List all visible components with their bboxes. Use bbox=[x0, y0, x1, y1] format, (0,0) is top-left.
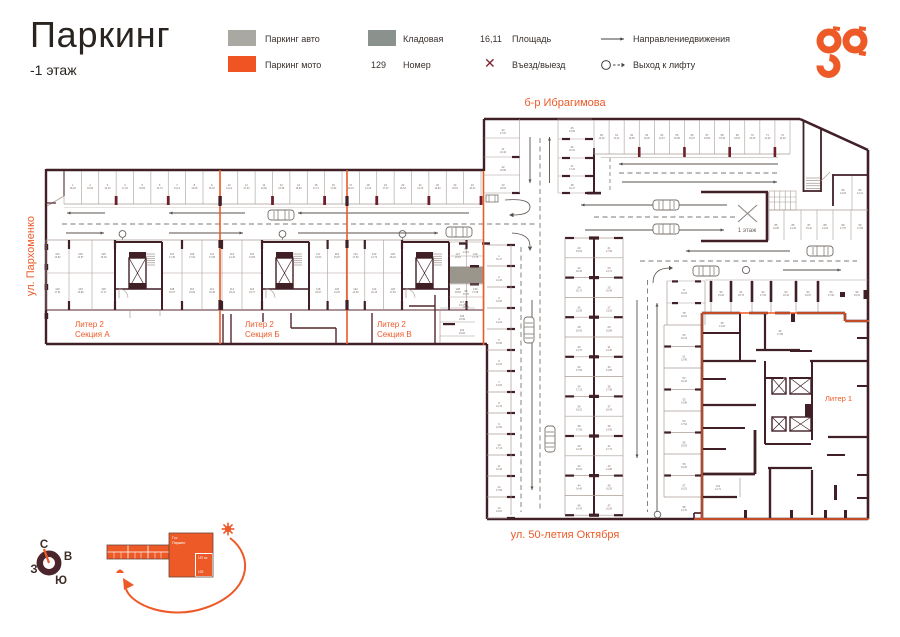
svg-text:16,97: 16,97 bbox=[805, 294, 812, 297]
svg-text:18,43: 18,43 bbox=[576, 329, 583, 332]
svg-text:17,63: 17,63 bbox=[353, 256, 360, 259]
svg-text:14,21: 14,21 bbox=[226, 187, 233, 190]
svg-text:18,33: 18,33 bbox=[469, 187, 476, 190]
svg-text:16,17: 16,17 bbox=[569, 187, 576, 190]
svg-text:17,68: 17,68 bbox=[209, 256, 216, 259]
svg-text:18,41: 18,41 bbox=[229, 291, 236, 294]
svg-text:18,99: 18,99 bbox=[459, 318, 466, 321]
svg-text:18,54: 18,54 bbox=[455, 291, 462, 294]
svg-text:13,28: 13,28 bbox=[576, 310, 583, 313]
svg-text:17,13: 17,13 bbox=[576, 389, 583, 392]
svg-text:1 этаж: 1 этаж bbox=[738, 227, 757, 234]
svg-text:13,84: 13,84 bbox=[55, 256, 62, 259]
svg-text:15,77: 15,77 bbox=[249, 291, 256, 294]
svg-text:16,46: 16,46 bbox=[500, 151, 507, 154]
svg-text:13,56: 13,56 bbox=[496, 426, 503, 429]
svg-text:17,27: 17,27 bbox=[382, 187, 389, 190]
svg-text:17,93: 17,93 bbox=[760, 294, 767, 297]
svg-text:15,53: 15,53 bbox=[455, 256, 462, 259]
svg-text:14,11: 14,11 bbox=[857, 192, 863, 195]
svg-text:16,25: 16,25 bbox=[576, 270, 583, 273]
svg-text:13,69: 13,69 bbox=[569, 130, 576, 133]
svg-text:14,66: 14,66 bbox=[496, 300, 503, 303]
svg-text:14,53: 14,53 bbox=[353, 291, 360, 294]
svg-text:17,48: 17,48 bbox=[606, 389, 613, 392]
svg-text:157 м²: 157 м² bbox=[198, 556, 207, 560]
svg-text:16,93: 16,93 bbox=[87, 187, 94, 190]
svg-text:ул. 50-летия Октября: ул. 50-летия Октября bbox=[511, 529, 620, 541]
svg-text:17,74: 17,74 bbox=[606, 448, 613, 451]
svg-text:14,15: 14,15 bbox=[365, 187, 372, 190]
svg-text:17,36: 17,36 bbox=[169, 256, 176, 259]
svg-text:13,83: 13,83 bbox=[435, 187, 442, 190]
svg-text:13,25: 13,25 bbox=[334, 291, 341, 294]
svg-text:17,73: 17,73 bbox=[472, 256, 479, 259]
svg-text:17,17: 17,17 bbox=[101, 291, 108, 294]
svg-text:16,61: 16,61 bbox=[854, 294, 861, 297]
svg-text:17,22: 17,22 bbox=[122, 187, 129, 190]
svg-text:Паркинг: Паркинг bbox=[172, 541, 186, 545]
svg-text:16,80: 16,80 bbox=[704, 137, 711, 140]
svg-text:15,54: 15,54 bbox=[576, 250, 583, 253]
svg-text:15,26: 15,26 bbox=[718, 294, 725, 297]
svg-text:17,88: 17,88 bbox=[777, 333, 784, 336]
svg-text:13,17: 13,17 bbox=[459, 304, 466, 307]
svg-text:16,91: 16,91 bbox=[681, 315, 688, 318]
svg-text:14,63: 14,63 bbox=[822, 227, 829, 230]
svg-text:14,23: 14,23 bbox=[681, 488, 688, 491]
svg-text:16,55: 16,55 bbox=[606, 508, 613, 511]
svg-text:16,15: 16,15 bbox=[371, 291, 378, 294]
svg-text:18,43: 18,43 bbox=[606, 409, 613, 412]
svg-text:17,58: 17,58 bbox=[496, 489, 503, 492]
svg-text:18,59: 18,59 bbox=[500, 169, 507, 172]
svg-text:16,20: 16,20 bbox=[644, 137, 651, 140]
svg-text:17,91: 17,91 bbox=[55, 291, 62, 294]
svg-text:15,91: 15,91 bbox=[576, 468, 583, 471]
svg-text:15,20: 15,20 bbox=[681, 466, 688, 469]
svg-text:14,46: 14,46 bbox=[599, 137, 606, 140]
svg-text:17,54: 17,54 bbox=[681, 423, 688, 426]
svg-text:17,97: 17,97 bbox=[500, 132, 507, 135]
svg-text:17,64: 17,64 bbox=[243, 187, 250, 190]
svg-text:16,60: 16,60 bbox=[629, 137, 636, 140]
svg-text:14,76: 14,76 bbox=[576, 349, 583, 352]
svg-text:16,53: 16,53 bbox=[315, 256, 322, 259]
svg-text:14,79: 14,79 bbox=[417, 187, 424, 190]
svg-text:13,45: 13,45 bbox=[681, 359, 688, 362]
svg-text:Гос: Гос bbox=[172, 536, 178, 540]
svg-text:15,70: 15,70 bbox=[463, 293, 470, 296]
svg-text:Литер 2: Литер 2 bbox=[377, 320, 406, 329]
svg-text:17,56: 17,56 bbox=[576, 369, 583, 372]
svg-text:15,63: 15,63 bbox=[400, 187, 407, 190]
svg-text:15,63: 15,63 bbox=[719, 137, 726, 140]
svg-text:15,84: 15,84 bbox=[139, 187, 146, 190]
svg-text:13,80: 13,80 bbox=[78, 291, 85, 294]
svg-text:17,82: 17,82 bbox=[857, 227, 864, 230]
svg-text:З: З bbox=[30, 564, 37, 576]
svg-text:Литер 2: Литер 2 bbox=[75, 320, 104, 329]
svg-text:15,87: 15,87 bbox=[334, 256, 341, 259]
svg-text:14,43: 14,43 bbox=[790, 227, 797, 230]
svg-text:17,56: 17,56 bbox=[576, 428, 583, 431]
svg-text:18,19: 18,19 bbox=[390, 256, 397, 259]
svg-text:18,54: 18,54 bbox=[500, 187, 507, 190]
svg-text:14,78: 14,78 bbox=[496, 405, 503, 408]
svg-text:15,48: 15,48 bbox=[209, 291, 216, 294]
svg-text:14,24: 14,24 bbox=[496, 321, 503, 324]
svg-text:17,84: 17,84 bbox=[330, 187, 337, 190]
svg-text:17,24: 17,24 bbox=[569, 168, 576, 171]
svg-text:18,21: 18,21 bbox=[576, 409, 583, 412]
svg-text:18,90: 18,90 bbox=[296, 187, 303, 190]
svg-text:17,13: 17,13 bbox=[496, 447, 503, 450]
svg-text:13,36: 13,36 bbox=[496, 468, 503, 471]
svg-text:Литер 2: Литер 2 bbox=[245, 320, 274, 329]
svg-text:14,67: 14,67 bbox=[659, 137, 666, 140]
svg-text:16,49: 16,49 bbox=[606, 290, 613, 293]
svg-text:16,97: 16,97 bbox=[169, 291, 176, 294]
svg-text:В: В bbox=[64, 551, 72, 563]
svg-text:Литер 1: Литер 1 bbox=[825, 394, 852, 403]
svg-text:16,80: 16,80 bbox=[674, 137, 681, 140]
svg-text:14,91: 14,91 bbox=[496, 510, 503, 513]
svg-text:13,72: 13,72 bbox=[606, 270, 613, 273]
svg-text:14,78: 14,78 bbox=[576, 448, 583, 451]
svg-text:14,40: 14,40 bbox=[576, 488, 583, 491]
svg-text:15,92: 15,92 bbox=[459, 332, 466, 335]
svg-text:14,20: 14,20 bbox=[764, 137, 771, 140]
svg-text:17,56: 17,56 bbox=[606, 250, 613, 253]
svg-text:15,97: 15,97 bbox=[734, 137, 741, 140]
svg-text:14,55: 14,55 bbox=[606, 428, 613, 431]
svg-text:14,18: 14,18 bbox=[496, 279, 503, 282]
svg-text:14,71: 14,71 bbox=[715, 488, 722, 491]
svg-text:15,86: 15,86 bbox=[496, 342, 503, 345]
svg-text:б-р Ибрагимова: б-р Ибрагимова bbox=[524, 97, 606, 109]
svg-text:13,36: 13,36 bbox=[606, 349, 613, 352]
svg-text:16,23: 16,23 bbox=[681, 292, 688, 295]
svg-text:14,70: 14,70 bbox=[681, 509, 688, 512]
svg-text:17,83: 17,83 bbox=[390, 291, 397, 294]
svg-text:13,74: 13,74 bbox=[157, 187, 164, 190]
svg-text:16,71: 16,71 bbox=[576, 290, 583, 293]
svg-text:17,68: 17,68 bbox=[472, 291, 479, 294]
svg-text:18,13: 18,13 bbox=[681, 337, 688, 340]
svg-text:14,29: 14,29 bbox=[779, 137, 786, 140]
svg-text:Выход к лифту: Выход к лифту bbox=[633, 60, 696, 70]
svg-text:14,57: 14,57 bbox=[78, 256, 85, 259]
svg-text:14,41: 14,41 bbox=[614, 137, 621, 140]
svg-text:Секция Б: Секция Б bbox=[245, 330, 280, 339]
svg-text:14,94: 14,94 bbox=[840, 192, 847, 195]
svg-text:129: 129 bbox=[198, 570, 204, 574]
svg-text:18,67: 18,67 bbox=[315, 291, 322, 294]
svg-text:13,82: 13,82 bbox=[496, 384, 503, 387]
svg-text:13,21: 13,21 bbox=[463, 251, 470, 254]
svg-text:16,16: 16,16 bbox=[348, 187, 355, 190]
svg-text:14,72: 14,72 bbox=[371, 256, 378, 259]
svg-text:16,18: 16,18 bbox=[209, 187, 216, 190]
svg-text:18,18: 18,18 bbox=[101, 256, 108, 259]
svg-text:16,39: 16,39 bbox=[606, 488, 613, 491]
svg-text:13,23: 13,23 bbox=[496, 363, 503, 366]
svg-text:14,76: 14,76 bbox=[576, 508, 583, 511]
svg-text:13,65: 13,65 bbox=[191, 187, 198, 190]
svg-text:18,75: 18,75 bbox=[738, 294, 745, 297]
svg-text:ул. Пархоменко: ул. Пархоменко bbox=[25, 216, 37, 296]
svg-text:14,14: 14,14 bbox=[174, 187, 181, 190]
svg-text:15,27: 15,27 bbox=[689, 137, 696, 140]
svg-text:16,39: 16,39 bbox=[749, 137, 756, 140]
svg-text:17,17: 17,17 bbox=[313, 187, 320, 190]
svg-text:14,98: 14,98 bbox=[606, 369, 613, 372]
svg-text:17,64: 17,64 bbox=[189, 256, 196, 259]
svg-text:18,16: 18,16 bbox=[783, 294, 790, 297]
svg-text:13,19: 13,19 bbox=[104, 187, 111, 190]
svg-text:15,69: 15,69 bbox=[189, 291, 196, 294]
svg-text:16,43: 16,43 bbox=[681, 380, 688, 383]
svg-text:16,98: 16,98 bbox=[606, 329, 613, 332]
svg-text:Направлениедвижения: Направлениедвижения bbox=[633, 34, 730, 44]
svg-text:13,53: 13,53 bbox=[606, 310, 613, 313]
svg-text:16,54: 16,54 bbox=[681, 445, 688, 448]
svg-text:17,57: 17,57 bbox=[840, 227, 847, 230]
svg-text:16,17: 16,17 bbox=[496, 258, 503, 261]
svg-text:Ю: Ю bbox=[55, 575, 67, 587]
svg-text:13,83: 13,83 bbox=[249, 256, 256, 259]
svg-text:14,88: 14,88 bbox=[606, 468, 613, 471]
svg-text:15,29: 15,29 bbox=[70, 187, 77, 190]
svg-text:14,98: 14,98 bbox=[681, 402, 688, 405]
svg-text:С: С bbox=[40, 539, 48, 551]
svg-text:Секция В: Секция В bbox=[377, 330, 412, 339]
svg-text:13,82: 13,82 bbox=[261, 187, 268, 190]
svg-text:14,53: 14,53 bbox=[719, 325, 726, 328]
svg-text:16,85: 16,85 bbox=[773, 227, 780, 230]
svg-text:15,10: 15,10 bbox=[806, 227, 813, 230]
svg-text:15,81: 15,81 bbox=[452, 187, 459, 190]
svg-text:Секция А: Секция А bbox=[75, 330, 110, 339]
svg-text:14,33: 14,33 bbox=[229, 256, 236, 259]
svg-text:15,31: 15,31 bbox=[569, 149, 576, 152]
svg-text:13,38: 13,38 bbox=[278, 187, 285, 190]
svg-text:17,60: 17,60 bbox=[828, 294, 835, 297]
